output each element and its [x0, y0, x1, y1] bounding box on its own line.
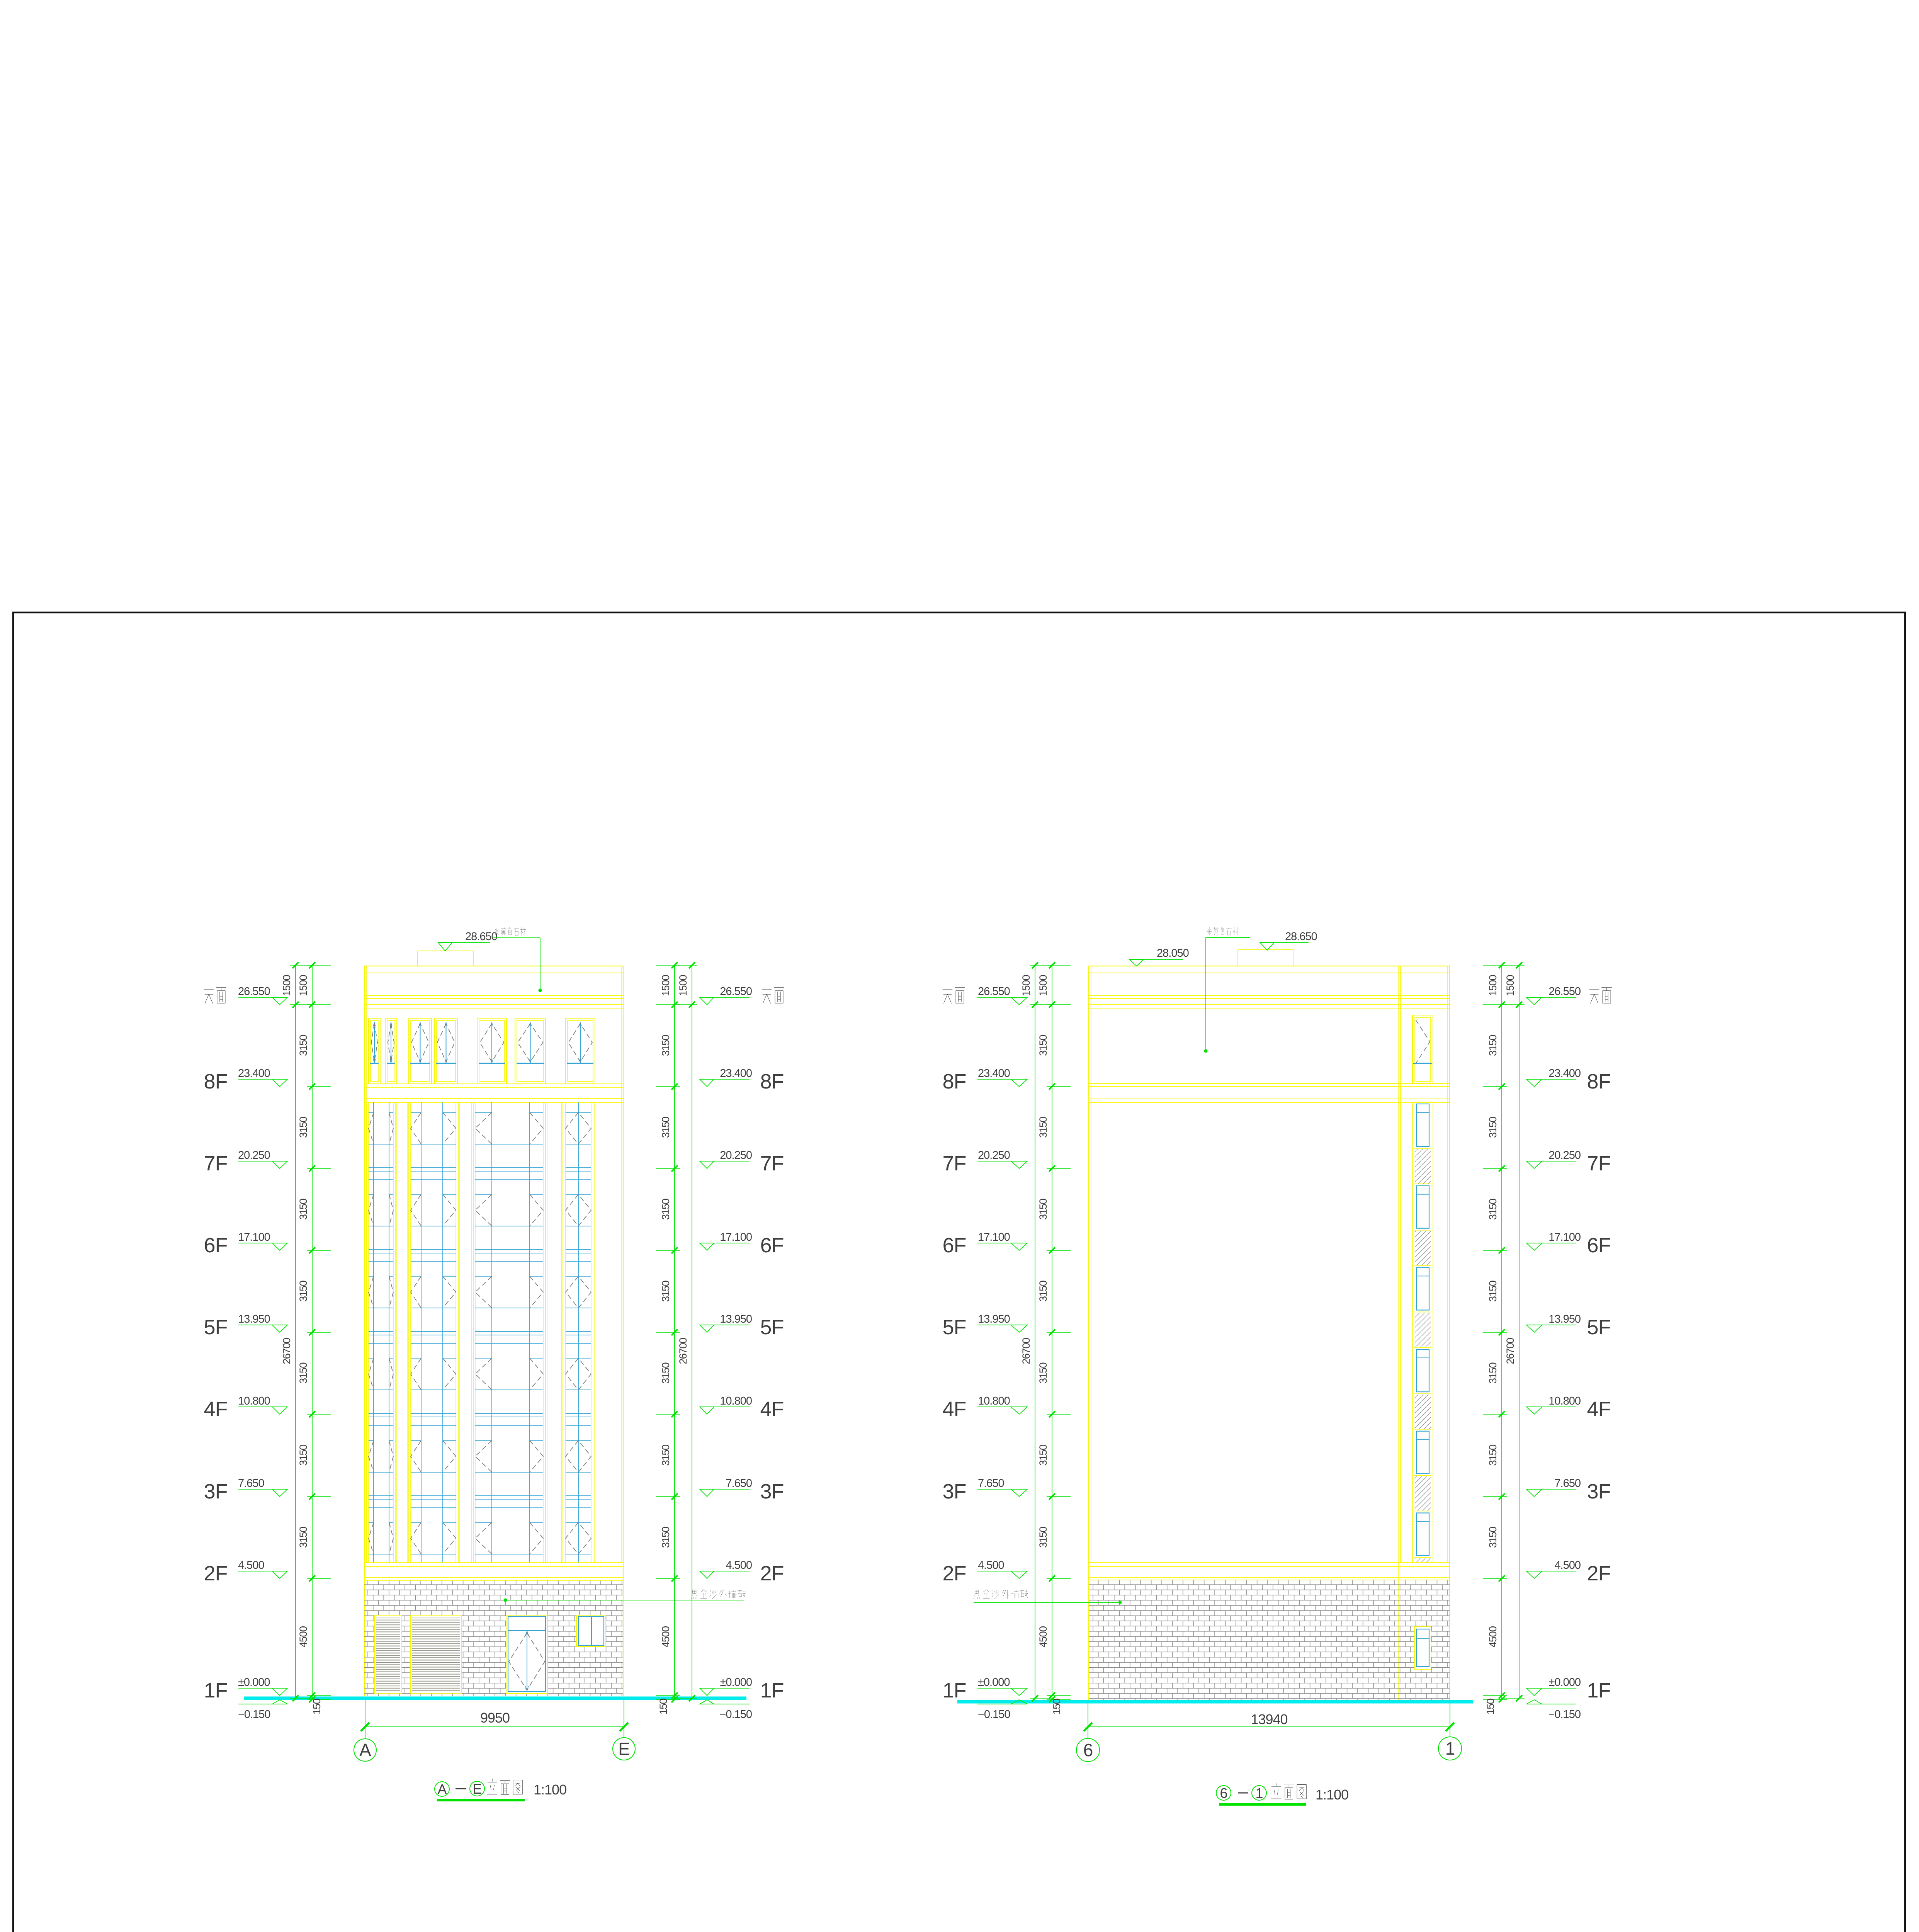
- svg-text:7F: 7F: [942, 1152, 966, 1175]
- svg-text:9950: 9950: [480, 1710, 510, 1726]
- svg-text:±0.000: ±0.000: [978, 1676, 1010, 1689]
- svg-text:6F: 6F: [1587, 1234, 1610, 1257]
- svg-text:3150: 3150: [297, 1199, 309, 1220]
- svg-text:26700: 26700: [1504, 1338, 1516, 1364]
- svg-text:4500: 4500: [660, 1626, 671, 1648]
- svg-text:3150: 3150: [1037, 1035, 1049, 1056]
- svg-text:3150: 3150: [660, 1527, 671, 1548]
- svg-text:7.650: 7.650: [238, 1477, 264, 1490]
- svg-text:4F: 4F: [942, 1398, 966, 1421]
- svg-text:20.250: 20.250: [978, 1149, 1010, 1162]
- svg-text:7.650: 7.650: [978, 1477, 1004, 1490]
- svg-text:3150: 3150: [297, 1281, 309, 1302]
- svg-text:7.650: 7.650: [1554, 1477, 1581, 1490]
- svg-text:3F: 3F: [204, 1480, 227, 1503]
- svg-text:±0.000: ±0.000: [720, 1676, 752, 1689]
- svg-text:1: 1: [1445, 1738, 1455, 1759]
- svg-text:7F: 7F: [1587, 1152, 1610, 1175]
- svg-text:28.650: 28.650: [465, 930, 497, 943]
- svg-text:2F: 2F: [204, 1562, 227, 1585]
- svg-text:150: 150: [1051, 1699, 1062, 1714]
- svg-text:3150: 3150: [1037, 1362, 1049, 1384]
- svg-text:1500: 1500: [1504, 975, 1516, 996]
- svg-text:3F: 3F: [942, 1480, 966, 1503]
- svg-text:−0.150: −0.150: [719, 1708, 752, 1721]
- svg-text:3150: 3150: [1487, 1281, 1499, 1302]
- svg-text:A: A: [437, 1781, 447, 1797]
- svg-text:3150: 3150: [297, 1117, 309, 1138]
- svg-text:3150: 3150: [1487, 1117, 1499, 1138]
- svg-text:26.550: 26.550: [238, 985, 270, 998]
- svg-text:6F: 6F: [204, 1234, 227, 1257]
- svg-text:17.100: 17.100: [978, 1231, 1010, 1243]
- svg-text:5F: 5F: [1587, 1316, 1610, 1339]
- svg-text:13.950: 13.950: [238, 1313, 270, 1325]
- svg-text:3150: 3150: [1487, 1199, 1499, 1220]
- svg-text:6: 6: [1220, 1785, 1227, 1801]
- svg-text:E: E: [473, 1781, 481, 1797]
- svg-text:150: 150: [1485, 1699, 1496, 1714]
- svg-text:4F: 4F: [204, 1398, 227, 1421]
- svg-text:3150: 3150: [1487, 1035, 1499, 1056]
- svg-text:1500: 1500: [281, 975, 292, 996]
- svg-text:3150: 3150: [297, 1362, 309, 1384]
- svg-text:1500: 1500: [677, 975, 689, 996]
- svg-text:1F: 1F: [1587, 1679, 1610, 1702]
- svg-text:17.100: 17.100: [1548, 1231, 1581, 1243]
- svg-text:10.800: 10.800: [720, 1395, 752, 1407]
- svg-text:1:100: 1:100: [1316, 1787, 1348, 1803]
- svg-text:E: E: [618, 1739, 630, 1759]
- svg-text:3150: 3150: [660, 1035, 671, 1056]
- svg-text:6F: 6F: [760, 1234, 784, 1257]
- svg-text:7.650: 7.650: [726, 1477, 752, 1490]
- svg-text:1F: 1F: [204, 1679, 227, 1702]
- svg-text:3150: 3150: [1037, 1445, 1049, 1466]
- svg-text:3150: 3150: [1487, 1445, 1499, 1466]
- svg-text:4F: 4F: [760, 1398, 784, 1421]
- svg-text:1:100: 1:100: [534, 1782, 566, 1798]
- svg-text:26.550: 26.550: [978, 985, 1010, 998]
- svg-text:8F: 8F: [760, 1070, 784, 1093]
- svg-text:26700: 26700: [677, 1338, 689, 1364]
- svg-text:3150: 3150: [1037, 1527, 1049, 1548]
- svg-text:7F: 7F: [204, 1152, 227, 1175]
- svg-text:23.400: 23.400: [720, 1067, 752, 1080]
- svg-text:10.800: 10.800: [1548, 1395, 1581, 1407]
- svg-text:4500: 4500: [297, 1626, 309, 1648]
- svg-text:5F: 5F: [760, 1316, 784, 1339]
- svg-text:3150: 3150: [1487, 1527, 1499, 1548]
- svg-text:5F: 5F: [204, 1316, 227, 1339]
- svg-text:3150: 3150: [1487, 1362, 1499, 1384]
- svg-text:6F: 6F: [942, 1234, 966, 1257]
- svg-text:20.250: 20.250: [238, 1149, 270, 1162]
- svg-text:3150: 3150: [297, 1035, 309, 1056]
- svg-text:3150: 3150: [660, 1117, 671, 1138]
- svg-text:8F: 8F: [1587, 1070, 1610, 1093]
- svg-text:13.950: 13.950: [720, 1313, 752, 1325]
- svg-text:17.100: 17.100: [238, 1231, 270, 1243]
- svg-text:3150: 3150: [297, 1445, 309, 1466]
- svg-text:28.050: 28.050: [1157, 947, 1189, 959]
- svg-text:3150: 3150: [660, 1445, 671, 1466]
- svg-text:4.500: 4.500: [726, 1559, 752, 1571]
- svg-text:A: A: [359, 1740, 371, 1760]
- svg-text:1: 1: [1255, 1785, 1263, 1801]
- svg-text:3150: 3150: [660, 1362, 671, 1384]
- svg-text:1500: 1500: [660, 975, 671, 996]
- svg-text:26.550: 26.550: [720, 985, 752, 998]
- svg-text:1F: 1F: [760, 1679, 784, 1702]
- svg-text:10.800: 10.800: [238, 1395, 270, 1407]
- svg-text:3150: 3150: [1037, 1199, 1049, 1220]
- svg-text:1500: 1500: [1487, 975, 1499, 996]
- svg-text:17.100: 17.100: [720, 1231, 752, 1243]
- svg-text:23.400: 23.400: [238, 1067, 270, 1080]
- svg-text:20.250: 20.250: [1548, 1149, 1581, 1162]
- svg-text:5F: 5F: [942, 1316, 966, 1339]
- svg-text:3150: 3150: [660, 1281, 671, 1302]
- svg-text:13.950: 13.950: [978, 1313, 1010, 1325]
- svg-text:3F: 3F: [760, 1480, 784, 1503]
- svg-text:1500: 1500: [1037, 975, 1049, 996]
- svg-text:±0.000: ±0.000: [1549, 1676, 1581, 1689]
- svg-text:−0.150: −0.150: [1548, 1708, 1581, 1721]
- svg-text:150: 150: [311, 1699, 323, 1714]
- svg-text:8F: 8F: [942, 1070, 966, 1093]
- svg-text:4500: 4500: [1037, 1626, 1049, 1648]
- svg-text:1500: 1500: [297, 975, 309, 996]
- svg-text:−0.150: −0.150: [978, 1708, 1010, 1721]
- svg-text:3F: 3F: [1587, 1480, 1610, 1503]
- svg-text:4500: 4500: [1487, 1626, 1499, 1648]
- svg-text:10.800: 10.800: [978, 1395, 1010, 1407]
- svg-text:3150: 3150: [1037, 1281, 1049, 1302]
- svg-text:26700: 26700: [1020, 1338, 1032, 1364]
- svg-text:4.500: 4.500: [978, 1559, 1004, 1571]
- svg-text:6: 6: [1083, 1740, 1093, 1760]
- svg-text:1F: 1F: [942, 1679, 966, 1702]
- svg-text:3150: 3150: [660, 1199, 671, 1220]
- svg-text:3150: 3150: [1037, 1117, 1049, 1138]
- svg-text:8F: 8F: [204, 1070, 227, 1093]
- svg-text:13940: 13940: [1251, 1711, 1287, 1727]
- svg-text:2F: 2F: [942, 1562, 966, 1585]
- svg-text:±0.000: ±0.000: [238, 1676, 270, 1689]
- svg-text:4F: 4F: [1587, 1398, 1610, 1421]
- svg-text:23.400: 23.400: [978, 1067, 1010, 1080]
- svg-text:4.500: 4.500: [1554, 1559, 1581, 1571]
- svg-text:23.400: 23.400: [1548, 1067, 1581, 1080]
- svg-text:13.950: 13.950: [1548, 1313, 1581, 1325]
- svg-text:3150: 3150: [297, 1527, 309, 1548]
- svg-text:20.250: 20.250: [720, 1149, 752, 1162]
- svg-text:150: 150: [658, 1699, 669, 1714]
- svg-text:7F: 7F: [760, 1152, 784, 1175]
- svg-text:26700: 26700: [281, 1338, 292, 1364]
- svg-text:26.550: 26.550: [1548, 985, 1581, 998]
- svg-text:4.500: 4.500: [238, 1559, 264, 1571]
- svg-text:1500: 1500: [1020, 975, 1032, 996]
- svg-text:−0.150: −0.150: [238, 1708, 270, 1721]
- svg-text:2F: 2F: [1587, 1562, 1610, 1585]
- svg-text:2F: 2F: [760, 1562, 784, 1585]
- svg-text:28.650: 28.650: [1285, 930, 1317, 943]
